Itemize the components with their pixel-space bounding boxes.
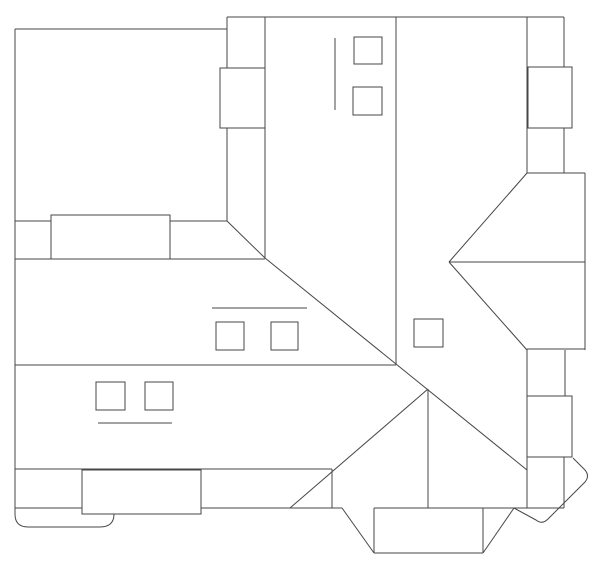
- skylight-low-1: [96, 382, 125, 410]
- bay-hip-right: [483, 508, 514, 553]
- skylight-mid-2: [271, 322, 298, 350]
- dormer-upper-left: [51, 215, 170, 259]
- bay-hip-left: [342, 508, 374, 553]
- hip-right-upper: [449, 173, 527, 262]
- skylight-center-right: [414, 319, 443, 347]
- dormer-lower-left: [82, 470, 201, 514]
- roof-plan-drawing: [0, 0, 600, 569]
- valley-diagonal-upper: [227, 221, 265, 258]
- rounded-bay-bottom-right: [514, 458, 588, 522]
- chimney-right: [527, 396, 572, 457]
- chimney-upper-right: [528, 67, 572, 128]
- skylight-mid-1: [216, 322, 244, 350]
- roof-plan-canvas: [0, 0, 600, 569]
- chimney-upper-center: [220, 68, 265, 128]
- skylight-low-2: [145, 382, 173, 410]
- skylight-top-1: [354, 37, 382, 64]
- hip-right-lower: [449, 262, 527, 350]
- skylight-top-2: [353, 87, 382, 115]
- hip-bottom-left: [290, 389, 428, 508]
